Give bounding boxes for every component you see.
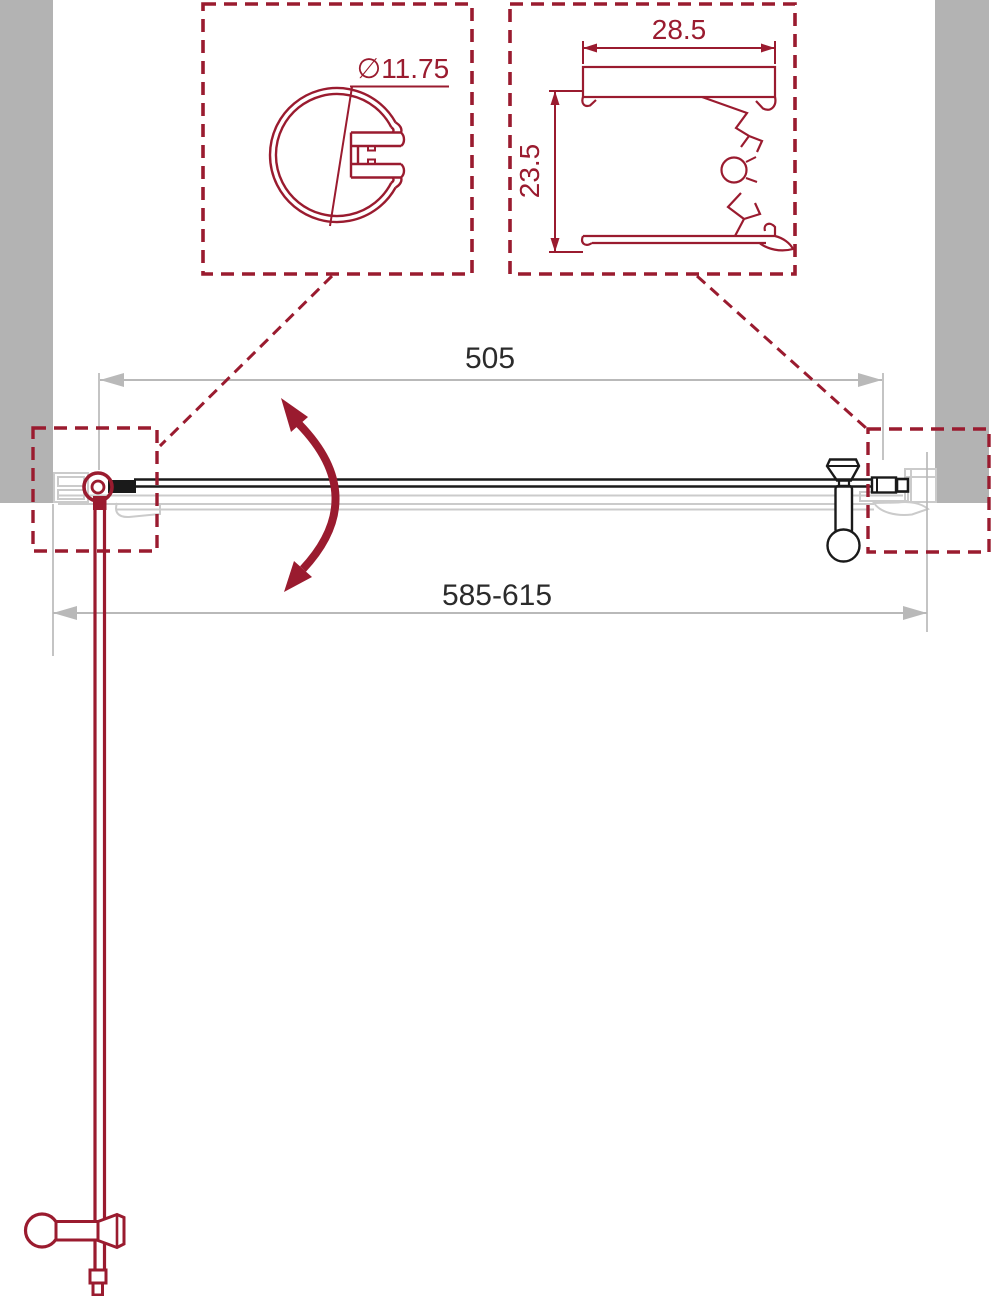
adjustment-range-value: 585-615: [442, 579, 552, 612]
profile-top-hooks: [582, 97, 775, 110]
door-end-seal: [872, 478, 896, 493]
detail-view-wall-profile: 28.5 23.5: [510, 4, 795, 274]
handle-knob: [827, 460, 859, 481]
dimension-adjustment-range: 585-615: [53, 452, 927, 656]
door-open: [26, 473, 125, 1295]
arrowhead-right: [858, 373, 882, 387]
knob-profile-notch: [368, 160, 375, 165]
pivot-hinge-inner: [92, 481, 104, 493]
leader-left: [160, 276, 332, 446]
profile-screw-boss: [722, 158, 747, 183]
arrowhead-right: [903, 606, 927, 620]
open-handle-bar: [56, 1222, 98, 1241]
knob-diameter-label: ∅11.75: [357, 53, 449, 84]
handle-ball: [828, 530, 860, 562]
sill-assembly: [54, 469, 936, 517]
arrowhead-bottom: [551, 238, 560, 252]
leader-right: [697, 276, 866, 428]
detail-frame: [203, 4, 472, 274]
arrowhead-left: [100, 373, 124, 387]
profile-web: [702, 97, 762, 236]
right-wall-profile-line: [905, 469, 936, 502]
left-wall-profile-prong: [58, 477, 84, 486]
arrowhead-right: [761, 44, 775, 53]
right-wall-profile: [905, 469, 936, 502]
drawing-canvas: 505 585-615 ∅11.7: [0, 0, 993, 1296]
knob-profile-mouth: [351, 123, 404, 188]
knob-profile-notch: [368, 146, 375, 151]
detail-view-knob-profile: ∅11.75: [203, 4, 472, 274]
dimension-glass-width: 505: [99, 342, 883, 470]
open-handle-knob: [98, 1215, 124, 1248]
arrowhead-left: [53, 606, 77, 620]
height-dim-line: [549, 91, 583, 252]
handle-bar: [836, 486, 853, 533]
right-sill-endcap: [874, 502, 928, 515]
profile-width-label: 28.5: [652, 14, 707, 45]
profile-bottom-flange: [582, 224, 793, 251]
open-door-end-foot: [93, 1283, 103, 1295]
glass-width-value: 505: [465, 342, 515, 375]
diameter-line: [330, 87, 352, 226]
profile-height-label: 23.5: [514, 144, 545, 199]
open-handle-ball: [26, 1214, 59, 1247]
profile-screw-port: [746, 157, 757, 182]
door-end-block: [897, 479, 908, 492]
arrowhead-top: [551, 91, 560, 105]
open-door-end-seal: [90, 1270, 106, 1283]
arrowhead-left: [583, 44, 597, 53]
profile-top-flange: [583, 67, 775, 97]
